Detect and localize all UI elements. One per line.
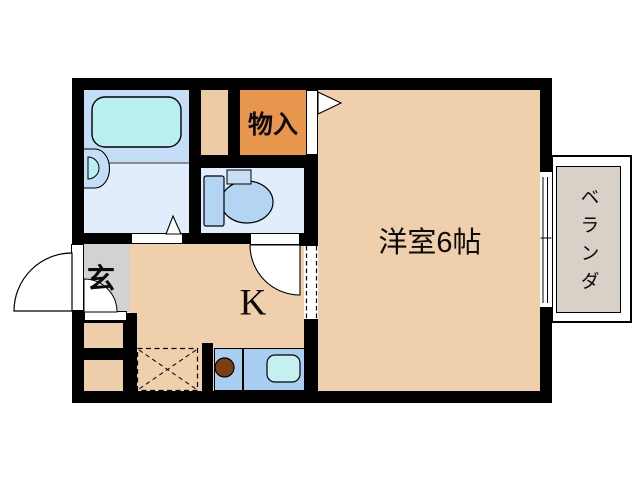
entrance-label: 玄 [87,257,115,297]
veranda-label: ベランダ [575,187,602,299]
wall-step-edge [84,321,127,323]
wall-mid-horizontal [189,155,318,168]
wall-kitchen-stub [202,343,213,391]
wall-right-lower [540,307,552,403]
wall-bottom [72,391,552,403]
washroom-floor [84,163,189,233]
floorplan-canvas: 物入 洋室6帖 K 玄 ベランダ [0,0,638,480]
wall-left-lower [72,311,84,403]
storage-box-lower [84,360,123,391]
toilet-door-opening [250,233,300,245]
entrance-door-opening [71,244,84,311]
storage-closet-label: 物入 [248,105,298,141]
bathroom-floor [84,90,189,163]
kitchen-counter [214,348,305,391]
wall-left-upper [72,78,84,244]
entrance-step [84,311,127,321]
storage-box-upper [84,323,123,348]
wall-top [72,78,552,90]
toilet-room-floor [201,168,304,233]
western-room-label: 洋室6帖 [378,219,481,261]
kitchen-label: K [240,282,267,325]
cased-opening-dashes [307,246,317,319]
window-opening [540,172,552,307]
closet-door [306,90,318,155]
wall-band-right [300,233,318,246]
wall-mid-column-lower [304,319,318,391]
wall-right-upper [540,78,552,172]
wall-storage-divider [84,348,123,360]
washroom-door-opening [131,233,183,244]
duct-column [201,90,228,155]
entrance-door-arc [14,253,72,311]
kitchen-counter-divider [242,348,244,391]
wall-storage-right [123,313,137,391]
wall-band-mid [183,233,250,244]
wall-band-left [72,233,131,244]
wall-duct-right [228,78,240,155]
